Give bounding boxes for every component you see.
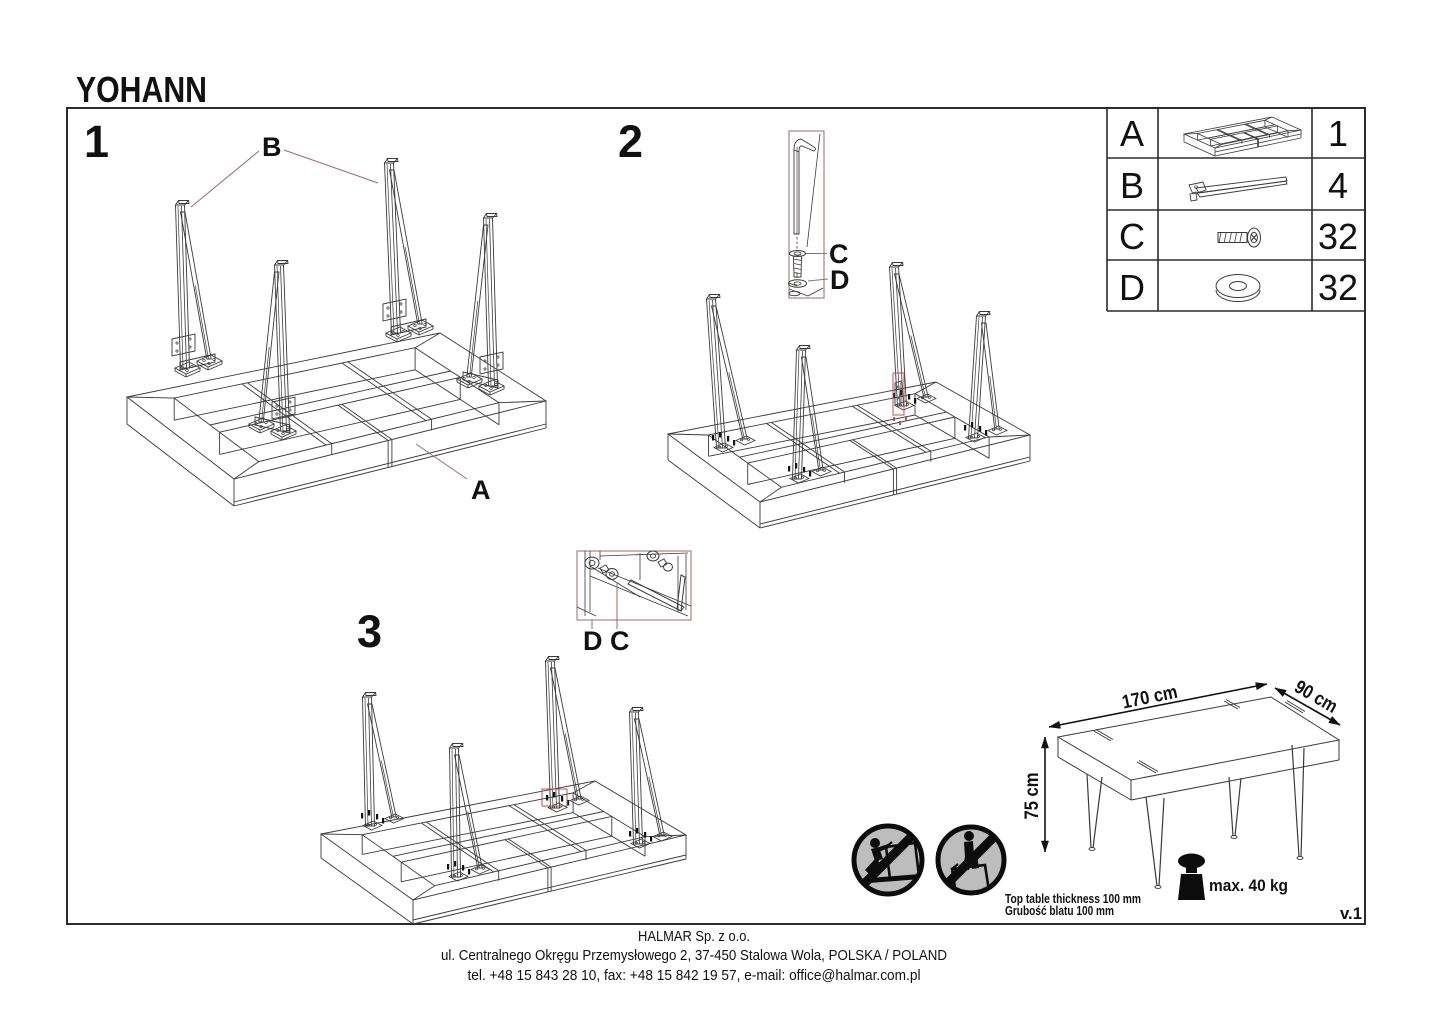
svg-text:YOHANN: YOHANN: [76, 69, 207, 110]
svg-text:1: 1: [84, 116, 109, 167]
svg-text:C: C: [1119, 216, 1145, 257]
svg-text:C: C: [610, 626, 630, 656]
svg-text:4: 4: [1328, 165, 1348, 206]
svg-text:B: B: [262, 132, 282, 162]
svg-text:A: A: [471, 475, 491, 505]
svg-text:D: D: [1119, 267, 1145, 308]
svg-text:2: 2: [618, 116, 643, 167]
svg-text:D: D: [583, 626, 603, 656]
svg-text:max. 40 kg: max. 40 kg: [1209, 876, 1288, 895]
svg-text:v.1: v.1: [1340, 904, 1362, 923]
svg-text:B: B: [1120, 165, 1144, 206]
svg-text:75 cm: 75 cm: [1022, 773, 1043, 820]
svg-text:tel. +48 15 843 28 10, fax: +4: tel. +48 15 843 28 10, fax: +48 15 842 1…: [468, 968, 921, 984]
svg-text:ul. Centralnego Okręgu Przemys: ul. Centralnego Okręgu Przemysłowego 2, …: [441, 948, 947, 964]
svg-text:32: 32: [1318, 267, 1358, 308]
svg-text:HALMAR Sp. z o.o.: HALMAR Sp. z o.o.: [638, 929, 750, 945]
svg-text:1: 1: [1328, 113, 1348, 154]
svg-text:A: A: [1120, 113, 1144, 154]
svg-text:3: 3: [357, 606, 382, 657]
svg-text:Grubość blatu 100 mm: Grubość blatu 100 mm: [1005, 903, 1114, 918]
svg-text:32: 32: [1318, 216, 1358, 257]
svg-text:D: D: [830, 265, 850, 295]
